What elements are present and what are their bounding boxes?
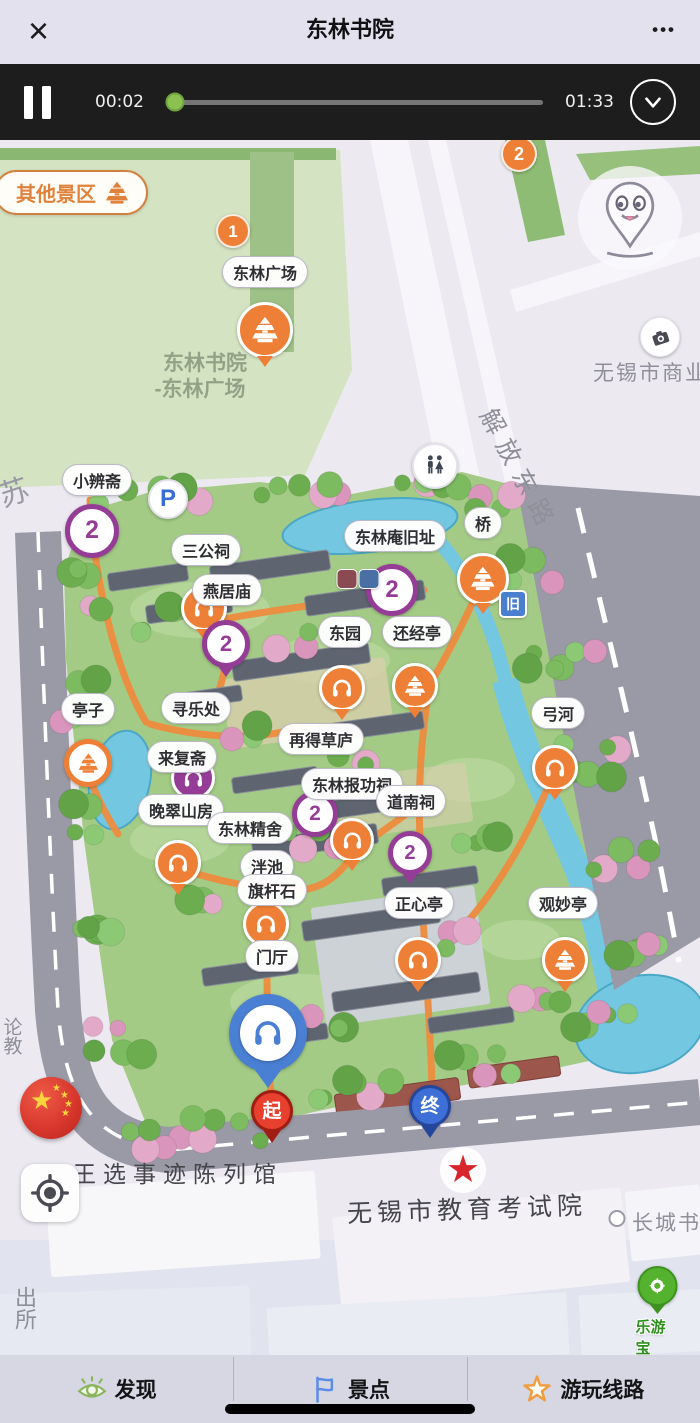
map-place-text: 论教 — [0, 1017, 25, 1055]
route-number-marker[interactable]: 2 — [501, 140, 537, 172]
home-indicator[interactable] — [225, 1404, 475, 1414]
slider-thumb[interactable] — [166, 93, 185, 112]
audio-guide-marker[interactable] — [395, 937, 441, 992]
mascot-pin-watermark — [578, 166, 682, 270]
badge-label: 其他景区 — [16, 178, 96, 207]
total-time: 01:33 — [565, 92, 614, 112]
eye-icon — [77, 1374, 107, 1404]
more-menu-icon[interactable]: ••• — [652, 4, 676, 56]
audio-player: 00:02 01:33 — [0, 64, 700, 140]
parking-icon: P — [148, 479, 188, 519]
scenic-spot-marker[interactable] — [542, 937, 588, 992]
building-icon — [337, 569, 358, 589]
map-label-pill[interactable]: 东林精舍 — [207, 812, 293, 844]
audio-guide-marker[interactable] — [532, 745, 578, 800]
map-label-pill[interactable]: 门厅 — [245, 940, 299, 972]
map-place-text: 长城书画 — [632, 1207, 700, 1237]
tab-label: 游玩线路 — [560, 1374, 644, 1404]
current-time: 00:02 — [95, 92, 144, 112]
map-place-text: 出所 — [8, 1286, 40, 1330]
map-label-pill[interactable]: 还经亭 — [382, 616, 452, 648]
map-label-pill[interactable]: 观妙亭 — [528, 887, 598, 919]
other-scenic-area-badge[interactable]: 其他景区 — [0, 170, 148, 215]
scenic-spot-marker[interactable] — [237, 302, 293, 367]
map-label-pill[interactable]: 东林广场 — [222, 256, 308, 288]
poi-dot — [609, 1210, 626, 1227]
flag-icon — [310, 1374, 340, 1404]
star-icon — [522, 1374, 552, 1404]
route-end-marker[interactable]: 终 — [409, 1085, 451, 1138]
scenic-spot-marker[interactable] — [64, 739, 112, 787]
map-label-pill[interactable]: 弓河 — [531, 697, 585, 729]
map-label-pill[interactable]: 道南祠 — [376, 785, 446, 817]
map-label-pill[interactable]: 三公祠 — [171, 534, 241, 566]
audio-guide-marker[interactable] — [155, 840, 201, 895]
audio-guide-marker[interactable] — [330, 818, 374, 871]
map-place-text: -东林广场 — [155, 373, 246, 403]
scenic-spot-marker[interactable] — [392, 663, 438, 718]
pause-button[interactable] — [24, 86, 51, 119]
pagoda-icon — [104, 180, 130, 206]
route-stop-marker[interactable]: 2 — [388, 831, 432, 884]
title-bar: × 东林书院 ••• — [0, 0, 700, 64]
poi-star-marker: ★ — [440, 1147, 486, 1193]
leyoubao-logo[interactable]: 乐游宝 — [636, 1266, 679, 1355]
route-stop-marker[interactable]: 2 — [202, 620, 250, 677]
map-label-pill[interactable]: 桥 — [464, 507, 502, 539]
map-place-text: 王选事迹陈列馆 — [73, 1155, 283, 1189]
audio-guide-marker[interactable] — [319, 665, 365, 720]
tab-discover[interactable]: 发现 — [0, 1355, 233, 1423]
route-number-marker[interactable]: 1 — [216, 214, 250, 248]
map-label-pill[interactable]: 亭子 — [61, 693, 115, 725]
map-label-pill[interactable]: 燕居庙 — [192, 574, 262, 606]
tab-label: 发现 — [115, 1374, 157, 1404]
restroom-icon — [412, 443, 458, 489]
map-label-pill[interactable]: 东园 — [318, 616, 372, 648]
photo-spot-icon — [640, 317, 680, 357]
current-audio-marker[interactable] — [229, 994, 307, 1088]
map-label-pill[interactable]: 来复斋 — [147, 741, 217, 773]
locate-button[interactable] — [21, 1164, 79, 1222]
tab-label: 景点 — [348, 1374, 390, 1404]
map-label-pill[interactable]: 再得草庐 — [278, 723, 364, 755]
map-label-pill[interactable]: 寻乐处 — [161, 692, 231, 724]
flag-ball-marker: ★★★★★ — [20, 1077, 82, 1139]
map-label-pill[interactable]: 正心亭 — [384, 887, 454, 919]
page-title: 东林书院 — [0, 0, 700, 64]
route-start-marker[interactable]: 起 — [251, 1090, 293, 1143]
map-label-pill[interactable]: 小辨斋 — [62, 464, 132, 496]
chevron-down-icon — [640, 89, 666, 115]
collapse-player-button[interactable] — [630, 79, 676, 125]
map-label-pill[interactable]: 东林庵旧址 — [344, 520, 446, 552]
old-site-icon: 旧 — [499, 590, 527, 618]
building-icon — [359, 569, 380, 589]
tab-routes[interactable]: 游玩线路 — [467, 1355, 700, 1423]
map-canvas[interactable]: 其他景区 东林广场小辨斋三公祠燕居庙东林庵旧址桥东园还经亭亭子寻乐处来复斋再得草… — [0, 140, 700, 1355]
progress-slider[interactable] — [166, 100, 543, 105]
route-stop-marker[interactable]: 2 — [65, 504, 119, 558]
map-label-pill[interactable]: 旗杆石 — [237, 874, 307, 906]
map-place-text: 无锡市商业纪 — [593, 357, 700, 387]
